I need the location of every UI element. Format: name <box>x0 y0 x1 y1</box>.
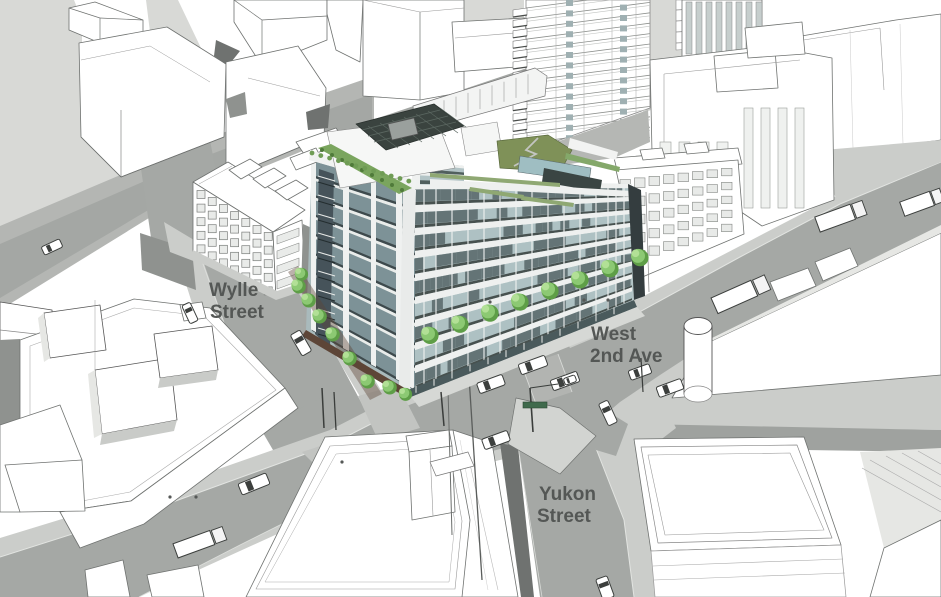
svg-text:Street: Street <box>210 302 265 323</box>
svg-text:Wylle: Wylle <box>209 280 258 301</box>
svg-text:Yukon: Yukon <box>539 484 596 505</box>
svg-text:2nd Ave: 2nd Ave <box>590 346 663 367</box>
svg-text:West: West <box>591 324 637 345</box>
svg-text:Street: Street <box>537 506 592 527</box>
